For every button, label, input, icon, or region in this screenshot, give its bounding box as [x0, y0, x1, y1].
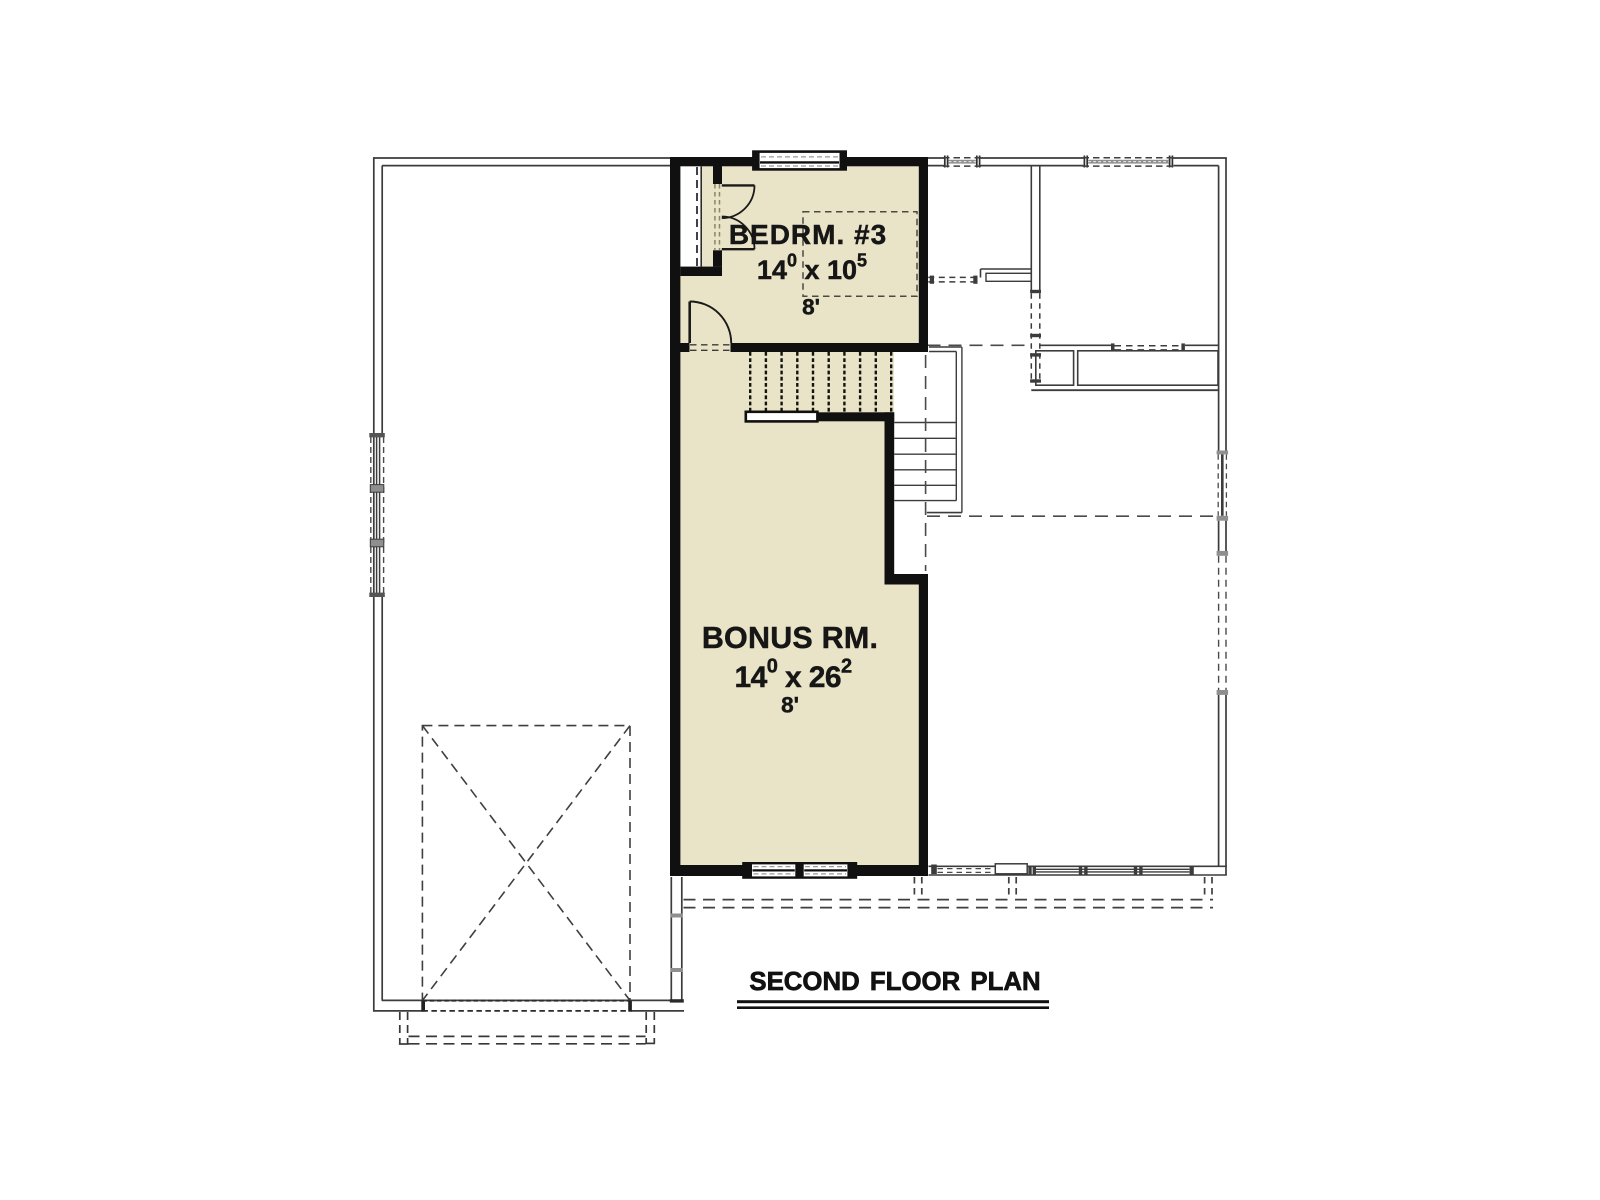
svg-text:BONUS RM.: BONUS RM.	[702, 621, 878, 655]
svg-text:8': 8'	[802, 295, 820, 320]
svg-text:SECOND FLOOR PLAN: SECOND FLOOR PLAN	[749, 968, 1040, 996]
svg-text:BEDRM. #3: BEDRM. #3	[729, 219, 887, 250]
svg-text:140 x 105: 140 x 105	[757, 250, 867, 285]
svg-text:8': 8'	[781, 693, 799, 718]
svg-text:140 x 262: 140 x 262	[735, 656, 852, 695]
